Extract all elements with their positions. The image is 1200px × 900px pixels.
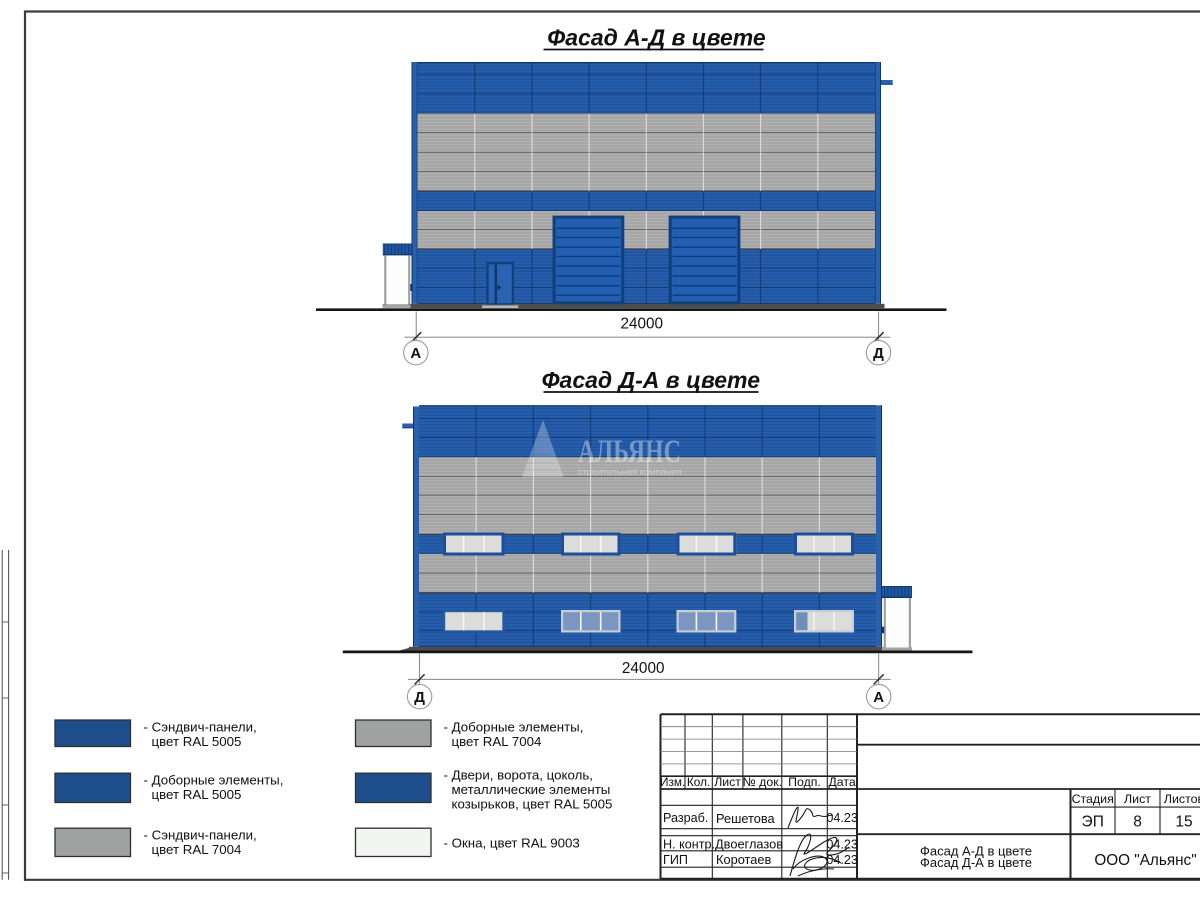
svg-text:АЛЬЯНС: АЛЬЯНС: [578, 434, 681, 470]
svg-text:ЭП: ЭП: [1082, 814, 1104, 831]
svg-text:- Сэндвич-панели,: - Сэндвич-панели,: [144, 828, 257, 843]
svg-text:металлические элементы: металлические элементы: [452, 782, 611, 797]
svg-text:Разраб.: Разраб.: [663, 811, 708, 825]
svg-text:8: 8: [1133, 814, 1142, 831]
svg-text:24000: 24000: [622, 660, 665, 677]
svg-text:Лист: Лист: [1124, 792, 1151, 806]
svg-text:Фасад Д-А в цвете: Фасад Д-А в цвете: [542, 367, 761, 393]
svg-text:Подп.: Подп.: [788, 775, 821, 789]
svg-text:- Сэндвич-панели,: - Сэндвич-панели,: [144, 720, 257, 735]
svg-text:04.23: 04.23: [826, 811, 858, 825]
svg-text:- Двери, ворота, цоколь,: - Двери, ворота, цоколь,: [444, 768, 594, 783]
svg-text:Коротаев: Коротаев: [716, 852, 771, 867]
svg-text:А: А: [873, 689, 884, 706]
svg-text:Дата: Дата: [828, 775, 855, 789]
svg-text:цвет RAL 5005: цвет RAL 5005: [152, 734, 242, 749]
svg-text:Решетова: Решетова: [716, 811, 776, 826]
svg-text:цвет RAL 7004: цвет RAL 7004: [152, 842, 242, 857]
svg-text:Д: Д: [414, 689, 425, 706]
svg-text:- Доборные элементы,: - Доборные элементы,: [144, 773, 284, 788]
svg-text:ООО "Альянс": ООО "Альянс": [1094, 852, 1196, 869]
svg-text:04.23: 04.23: [826, 838, 858, 852]
svg-text:Фасад А-Д в цвете: Фасад А-Д в цвете: [547, 25, 766, 51]
svg-text:№ док.: № док.: [743, 775, 782, 789]
svg-text:Листов: Листов: [1164, 792, 1200, 806]
svg-text:козырьков, цвет RAL 5005: козырьков, цвет RAL 5005: [452, 797, 613, 812]
svg-text:Фасад Д-А в цвете: Фасад Д-А в цвете: [920, 855, 1032, 870]
svg-text:Кол.: Кол.: [687, 775, 710, 789]
svg-text:Двоеглазов: Двоеглазов: [715, 837, 783, 852]
svg-text:цвет RAL 5005: цвет RAL 5005: [152, 787, 242, 802]
svg-text:Изм.: Изм.: [660, 775, 685, 789]
svg-text:ГИП: ГИП: [663, 853, 688, 867]
svg-text:Н. контр.: Н. контр.: [663, 838, 715, 852]
svg-text:цвет RAL 7004: цвет RAL 7004: [452, 734, 542, 749]
svg-text:- Окна, цвет RAL 9003: - Окна, цвет RAL 9003: [444, 836, 580, 851]
svg-text:Д: Д: [873, 345, 884, 362]
svg-text:- Доборные элементы,: - Доборные элементы,: [444, 720, 584, 735]
svg-text:15: 15: [1175, 814, 1192, 831]
svg-text:Стадия: Стадия: [1072, 792, 1114, 806]
svg-text:Лист: Лист: [714, 775, 741, 789]
svg-text:строительная компания: строительная компания: [578, 467, 682, 477]
svg-text:А: А: [410, 345, 421, 362]
svg-text:24000: 24000: [621, 316, 664, 333]
